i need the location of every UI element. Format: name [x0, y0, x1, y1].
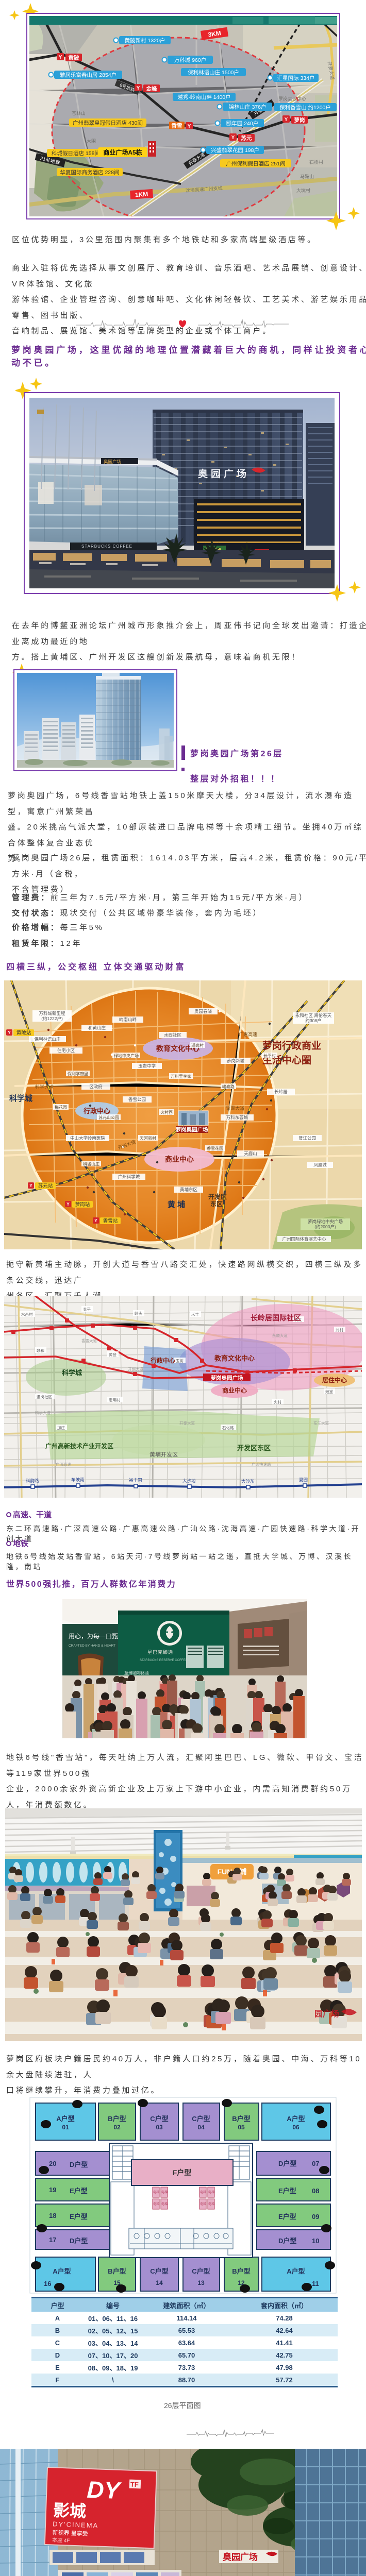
- svg-text:和黄山庄: 和黄山庄: [88, 1025, 106, 1030]
- svg-text:马鞍山: 马鞍山: [300, 174, 314, 179]
- svg-text:萝岗奥园广场: 萝岗奥园广场: [211, 1375, 243, 1381]
- svg-text:黄陂新村 1320户: 黄陂新村 1320户: [125, 37, 165, 44]
- svg-text:绿地中央广场: 绿地中央广场: [114, 1053, 139, 1058]
- svg-text:科学城: 科学城: [9, 1094, 32, 1103]
- svg-text:05: 05: [238, 2124, 245, 2131]
- svg-text:罗岗会议中心: 罗岗会议中心: [278, 96, 306, 101]
- svg-text:车陂南: 车陂南: [71, 1477, 85, 1482]
- svg-text:岭南山畔: 岭南山畔: [119, 1017, 137, 1022]
- svg-text:E户型: E户型: [70, 2187, 88, 2195]
- svg-text:约308户: 约308户: [305, 1018, 321, 1023]
- svg-text:至臻咖啡体验: 至臻咖啡体验: [124, 1670, 149, 1675]
- svg-text:贤江公园: 贤江公园: [298, 1136, 316, 1141]
- svg-text:大坑村: 大坑村: [296, 188, 310, 193]
- svg-text:奥园春晓: 奥园春晓: [194, 1009, 212, 1014]
- svg-text:电梯: 电梯: [153, 2190, 159, 2194]
- svg-text:万科里享家: 万科里享家: [171, 1074, 191, 1079]
- svg-text:刘村: 刘村: [336, 1327, 343, 1332]
- svg-text:08: 08: [312, 2187, 319, 2195]
- svg-text:加庄: 加庄: [57, 1425, 65, 1430]
- svg-text:区政府: 区政府: [89, 1084, 103, 1089]
- svg-text:Y: Y: [231, 135, 235, 141]
- svg-text:凤凰城: 凤凰城: [313, 1162, 327, 1167]
- svg-text:电梯: 电梯: [200, 2190, 206, 2194]
- svg-text:天河新村: 天河新村: [140, 1136, 156, 1141]
- svg-text:A户型: A户型: [53, 2267, 71, 2275]
- svg-text:STARBUCKS COFFEE: STARBUCKS COFFEE: [81, 544, 132, 549]
- svg-text:16: 16: [44, 2280, 51, 2287]
- svg-text:黄陂: 黄陂: [69, 55, 79, 61]
- svg-text:大沙地: 大沙地: [182, 1478, 196, 1483]
- svg-text:19: 19: [49, 2186, 56, 2194]
- svg-text:Y: Y: [285, 117, 288, 123]
- svg-text:天鹿山: 天鹿山: [244, 1151, 257, 1156]
- svg-text:科学大道: 科学大道: [35, 1410, 51, 1415]
- svg-text:华夏国际商务酒店 228间: 华夏国际商务酒店 228间: [60, 169, 120, 176]
- svg-text:广州翡翠皇冠假日酒店 430间: 广州翡翠皇冠假日酒店 430间: [73, 120, 143, 126]
- svg-text:永和社区 海伦春天: 永和社区 海伦春天: [295, 1013, 332, 1018]
- svg-text:科城山庄: 科城山庄: [83, 1161, 99, 1166]
- svg-text:苏元山公园: 苏元山公园: [98, 1115, 119, 1120]
- svg-text:锦林山庄 376户: 锦林山庄 376户: [229, 104, 267, 110]
- svg-text:香雪大道: 香雪大道: [81, 1338, 97, 1343]
- svg-text:A户型: A户型: [287, 2267, 305, 2275]
- svg-text:B户型: B户型: [108, 2267, 126, 2275]
- svg-text:行政中心: 行政中心: [150, 1357, 175, 1364]
- svg-text:D户型: D户型: [278, 2237, 296, 2245]
- svg-text:万科城 960户: 万科城 960户: [174, 57, 206, 63]
- svg-text:保利香雪山 约1200户: 保利香雪山 约1200户: [279, 104, 331, 111]
- svg-text:C户型: C户型: [150, 2115, 168, 2123]
- svg-text:兴盛翡翠花园 198户: 兴盛翡翠花园 198户: [211, 147, 259, 154]
- svg-text:万科东荟城: 万科东荟城: [226, 1115, 248, 1120]
- svg-text:萝岗行政商业: 萝岗行政商业: [262, 1040, 321, 1052]
- svg-text:奥园广场: 奥园广场: [198, 468, 249, 480]
- svg-text:E户型: E户型: [70, 2213, 88, 2221]
- svg-text:E户型: E户型: [278, 2187, 296, 2195]
- svg-text:中山大学岭南医院: 中山大学岭南医院: [70, 1136, 106, 1141]
- svg-text:Y: Y: [59, 55, 62, 60]
- svg-text:电梯: 电梯: [153, 2202, 159, 2206]
- svg-text:暹岗村: 暹岗村: [191, 1043, 204, 1048]
- svg-text:永顺大道: 永顺大道: [272, 1333, 288, 1338]
- svg-text:10: 10: [312, 2237, 319, 2245]
- svg-text:香雪: 香雪: [171, 123, 182, 129]
- svg-text:萝岗站: 萝岗站: [75, 1201, 90, 1208]
- svg-text:萝岗绿地中央广场: 萝岗绿地中央广场: [308, 1219, 343, 1224]
- svg-text:长岭居: 长岭居: [274, 1089, 288, 1094]
- svg-text:梅花园: 梅花园: [55, 1105, 67, 1110]
- svg-text:长平村: 长平村: [263, 1053, 276, 1058]
- svg-text:03: 03: [156, 2124, 163, 2131]
- svg-text:宏明村: 宏明村: [109, 1397, 121, 1402]
- svg-text:C户型: C户型: [150, 2267, 168, 2275]
- svg-text:B户型: B户型: [108, 2115, 126, 2123]
- svg-text:黄陂站: 黄陂站: [16, 1030, 31, 1036]
- svg-text:奥园广场: 奥园广场: [104, 459, 121, 464]
- svg-text:雅居乐富春山居 2854户: 雅居乐富春山居 2854户: [60, 72, 117, 78]
- svg-text:CRAFTED BY HAND & HEART: CRAFTED BY HAND & HEART: [69, 1644, 115, 1648]
- svg-text:影城: 影城: [53, 2501, 86, 2520]
- svg-text:岭头: 岭头: [135, 1311, 142, 1316]
- svg-text:电梯: 电梯: [161, 2202, 168, 2206]
- svg-text:广惠高速: 广惠高速: [239, 1031, 257, 1037]
- svg-text:教育文化中心: 教育文化中心: [214, 1354, 255, 1362]
- svg-text:香雪公园: 香雪公园: [128, 1097, 146, 1102]
- svg-text:保利林语山庄: 保利林语山庄: [34, 1037, 61, 1042]
- svg-text:本座 4F: 本座 4F: [52, 2536, 70, 2544]
- svg-text:11: 11: [312, 2280, 319, 2287]
- svg-text:广州高新技术产业开发区: 广州高新技术产业开发区: [45, 1442, 113, 1450]
- svg-text:黄登: 黄登: [109, 1352, 117, 1357]
- svg-text:Y: Y: [188, 124, 191, 129]
- svg-text:04: 04: [197, 2124, 205, 2131]
- svg-text:峻泰路: 峻泰路: [222, 1084, 235, 1089]
- svg-text:电梯: 电梯: [200, 2202, 206, 2206]
- svg-text:02: 02: [113, 2124, 121, 2131]
- svg-text:广州保利假日酒店 251间: 广州保利假日酒店 251间: [226, 160, 286, 167]
- svg-text:B户型: B户型: [232, 2115, 250, 2123]
- svg-text:大沙东: 大沙东: [241, 1479, 255, 1484]
- svg-text:C户型: C户型: [192, 2267, 210, 2275]
- svg-text:姬堂: 姬堂: [325, 1389, 333, 1394]
- svg-text:17: 17: [49, 2236, 56, 2244]
- svg-text:D户型: D户型: [278, 2160, 296, 2167]
- svg-text:萝岗: 萝岗: [294, 117, 305, 124]
- svg-text:暹岗社区: 暹岗社区: [37, 1394, 52, 1399]
- svg-text:广州国际体育演艺中心: 广州国际体育演艺中心: [282, 1236, 326, 1242]
- svg-text:东区: 东区: [210, 1200, 223, 1208]
- svg-text:开发区东区: 开发区东区: [237, 1444, 271, 1452]
- svg-text:保利林语山庄 1500户: 保利林语山庄 1500户: [188, 69, 239, 76]
- svg-text:东江大道: 东江大道: [313, 1420, 329, 1426]
- svg-text:黄埔开发区: 黄埔开发区: [149, 1451, 178, 1458]
- svg-text:01: 01: [62, 2124, 69, 2131]
- svg-text:裕丰围: 裕丰围: [129, 1478, 142, 1483]
- svg-text:苏元站: 苏元站: [38, 1183, 53, 1189]
- svg-text:STARBUCKS RESERVE COFFEE: STARBUCKS RESERVE COFFEE: [140, 1659, 187, 1662]
- svg-text:Y: Y: [94, 1218, 97, 1223]
- svg-text:石桥村: 石桥村: [309, 159, 323, 165]
- svg-text:禾丰: 禾丰: [191, 1312, 199, 1317]
- svg-text:E户型: E户型: [278, 2213, 296, 2221]
- svg-text:13: 13: [197, 2279, 205, 2286]
- svg-text:香雪大道: 香雪大道: [226, 1105, 245, 1111]
- svg-text:科韵路: 科韵路: [26, 1478, 39, 1483]
- svg-text:长岭居国际社区: 长岭居国际社区: [251, 1314, 301, 1322]
- svg-text:开创大道: 开创大道: [128, 1366, 143, 1371]
- svg-text:电梯: 电梯: [161, 2190, 168, 2194]
- svg-text:Y: Y: [137, 86, 140, 91]
- svg-text:广州科学城: 广州科学城: [118, 1174, 140, 1179]
- svg-text:金峰: 金峰: [146, 86, 157, 92]
- svg-text:Y: Y: [8, 1030, 11, 1035]
- svg-text:09: 09: [312, 2213, 319, 2221]
- svg-text:玉岩中学: 玉岩中学: [138, 1063, 156, 1069]
- svg-text:科城假日酒店 158间: 科城假日酒店 158间: [52, 150, 100, 157]
- svg-text:开发区: 开发区: [208, 1193, 227, 1200]
- svg-text:石化路: 石化路: [222, 1425, 234, 1430]
- svg-text:(约1222户): (约1222户): [41, 1016, 63, 1021]
- svg-text:F户型: F户型: [173, 2168, 192, 2177]
- svg-text:20: 20: [49, 2160, 56, 2167]
- svg-text:Y: Y: [29, 1183, 32, 1188]
- svg-text:长平: 长平: [83, 1307, 91, 1312]
- svg-text:居住中心: 居住中心: [322, 1376, 347, 1384]
- svg-text:园广场: 园广场: [314, 2009, 339, 2019]
- svg-text:07: 07: [312, 2160, 319, 2167]
- svg-text:火村: 火村: [274, 1399, 281, 1404]
- svg-text:广园快速路: 广园快速路: [252, 1462, 271, 1467]
- svg-text:星巴克臻选: 星巴克臻选: [147, 1649, 173, 1655]
- svg-text:黄埔: 黄埔: [168, 1200, 187, 1209]
- svg-text:香雪花园: 香雪花园: [207, 1146, 223, 1151]
- svg-text:火村西: 火村西: [160, 1110, 173, 1115]
- svg-text:香雪站: 香雪站: [103, 1218, 118, 1224]
- svg-text:水西村: 水西村: [21, 1312, 33, 1317]
- svg-text:万科城新里程: 万科城新里程: [39, 1011, 65, 1016]
- svg-text:DY: DY: [87, 2476, 123, 2504]
- svg-text:A户型: A户型: [287, 2115, 305, 2123]
- svg-text:保利学府里: 保利学府里: [68, 1071, 88, 1076]
- svg-text:DY'CINEMA: DY'CINEMA: [53, 2520, 99, 2529]
- svg-text:商业广场A5栋: 商业广场A5栋: [103, 148, 142, 156]
- svg-text:越秀·岭南山畔 1400户: 越秀·岭南山畔 1400户: [177, 94, 230, 100]
- svg-text:C户型: C户型: [192, 2115, 210, 2123]
- svg-text:(约2000户): (约2000户): [314, 1224, 336, 1229]
- svg-text:夏园: 夏园: [299, 1477, 308, 1482]
- svg-text:奥园广场: 奥园广场: [223, 2552, 258, 2562]
- svg-text:科学大道: 科学大道: [35, 1084, 54, 1090]
- svg-text:水西社区: 水西社区: [164, 1032, 182, 1038]
- svg-text:科学城: 科学城: [62, 1369, 82, 1377]
- svg-text:06: 06: [292, 2124, 300, 2131]
- svg-text:苍林山: 苍林山: [72, 110, 86, 116]
- svg-text:B户型: B户型: [232, 2267, 250, 2275]
- svg-text:开泰大道: 开泰大道: [179, 1420, 195, 1426]
- svg-text:玉树: 玉树: [176, 1358, 184, 1363]
- svg-text:Y: Y: [66, 1201, 70, 1207]
- svg-text:颐年园 240户: 颐年园 240户: [226, 120, 258, 127]
- svg-text:电梯: 电梯: [208, 2190, 214, 2194]
- svg-text:大围: 大围: [87, 138, 96, 144]
- svg-text:行政中心: 行政中心: [83, 1107, 110, 1115]
- svg-text:广深高速: 广深高速: [56, 1462, 71, 1467]
- svg-text:联和: 联和: [37, 1348, 44, 1353]
- svg-text:住宅小区: 住宅小区: [57, 1048, 75, 1053]
- svg-text:萝岗奥园广场: 萝岗奥园广场: [176, 1126, 208, 1133]
- svg-text:萝岗新城: 萝岗新城: [227, 1058, 245, 1063]
- svg-text:D户型: D户型: [70, 2161, 88, 2168]
- svg-text:汇星国际 334户: 汇星国际 334户: [277, 75, 315, 81]
- svg-text:用心，为每一口甄心: 用心，为每一口甄心: [69, 1632, 124, 1640]
- svg-text:18: 18: [49, 2212, 56, 2219]
- svg-text:电梯: 电梯: [208, 2202, 214, 2206]
- svg-text:苏元: 苏元: [241, 135, 252, 142]
- svg-text:黄埔东区: 黄埔东区: [180, 1187, 198, 1192]
- svg-text:A户型: A户型: [56, 2115, 74, 2123]
- svg-text:1KM: 1KM: [135, 191, 148, 199]
- svg-text:商业中心: 商业中心: [222, 1386, 247, 1394]
- svg-text:D户型: D户型: [70, 2237, 88, 2245]
- svg-text:TF: TF: [130, 2481, 139, 2489]
- svg-text:14: 14: [156, 2279, 163, 2286]
